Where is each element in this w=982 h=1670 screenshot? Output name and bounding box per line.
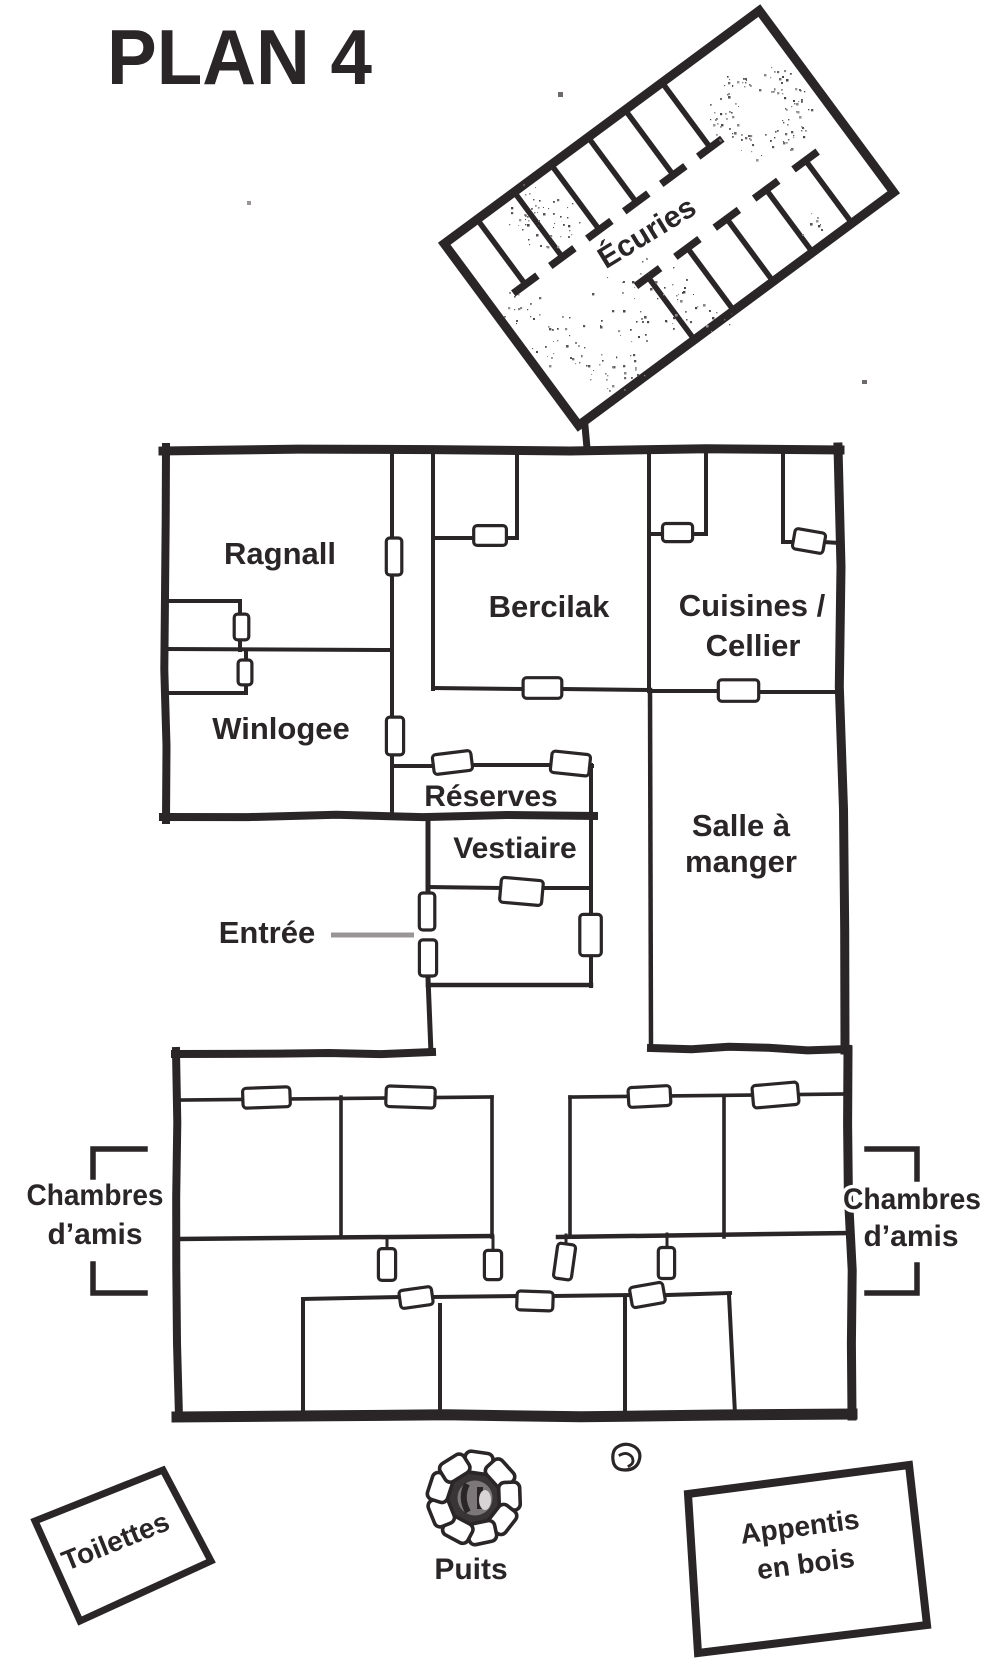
- svg-text:Vestiaire: Vestiaire: [453, 832, 576, 865]
- svg-text:Chambres: Chambres: [27, 1179, 164, 1212]
- svg-text:Puits: Puits: [434, 1553, 507, 1586]
- svg-text:d’amis: d’amis: [863, 1220, 958, 1253]
- svg-text:PLAN 4: PLAN 4: [107, 13, 372, 101]
- svg-text:Cuisines /: Cuisines /: [679, 588, 826, 623]
- svg-text:Ragnall: Ragnall: [224, 536, 336, 571]
- svg-text:Bercilak: Bercilak: [489, 589, 610, 624]
- svg-text:manger: manger: [685, 844, 797, 879]
- svg-text:Réserves: Réserves: [424, 780, 557, 813]
- svg-text:Winlogee: Winlogee: [212, 711, 350, 746]
- svg-text:Cellier: Cellier: [706, 628, 801, 663]
- svg-text:Salle à: Salle à: [692, 808, 791, 843]
- svg-text:d’amis: d’amis: [47, 1218, 142, 1251]
- svg-text:Chambres: Chambres: [843, 1183, 981, 1216]
- svg-text:Entrée: Entrée: [219, 915, 315, 950]
